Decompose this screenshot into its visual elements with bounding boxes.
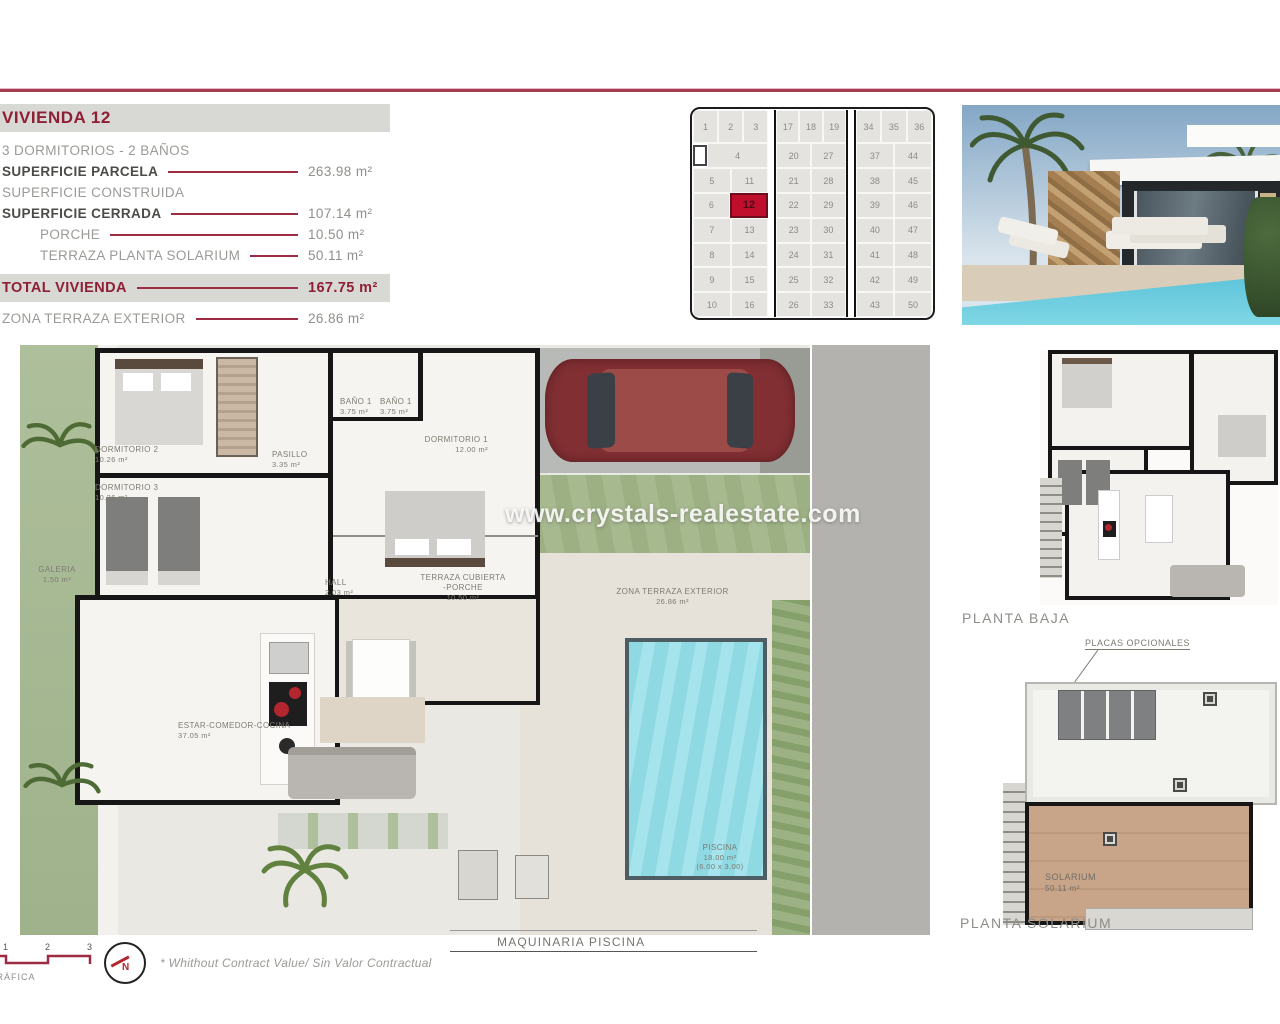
site-cell: 45 — [894, 168, 932, 193]
room-label: DORMITORIO 310.26 m² — [95, 483, 185, 502]
mini-bed — [1062, 358, 1112, 408]
site-cell: 10 — [693, 292, 731, 317]
street-right — [810, 345, 930, 935]
pool-equipment — [458, 850, 498, 900]
site-cell: 1 — [693, 110, 718, 143]
site-cell: 15 — [731, 267, 769, 292]
bed-double — [385, 491, 485, 567]
villa-render-photo — [962, 105, 1280, 325]
room-label: TERRAZA CUBIERTA -PORCHE10.50 m² — [420, 573, 506, 602]
room-label: GALERIA1.50 m² — [34, 565, 80, 584]
mini-table — [1145, 495, 1173, 543]
site-cell: 22 — [776, 193, 811, 218]
roof-band-upper — [1187, 125, 1280, 147]
brochure-page: VIVIENDA 12 3 DORMITORIOS - 2 BAÑOSSUPER… — [0, 0, 1280, 1024]
site-cell: 7 — [693, 218, 731, 243]
planta-baja-label: PLANTA BAJA — [962, 610, 1070, 626]
room-label: ESTAR-COMEDOR-COCINA37.05 m² — [178, 721, 308, 740]
site-cell: 49 — [894, 267, 932, 292]
site-cell: 17 — [776, 110, 799, 143]
mini-bed — [1218, 415, 1266, 457]
site-cell: 35 — [881, 110, 906, 143]
bed-double — [115, 359, 203, 445]
scale-label: ESCALA GRÁFICA — [0, 972, 36, 982]
bed-single — [106, 497, 148, 585]
site-plan-grid: 1234511612713814915101617181920272128222… — [690, 107, 935, 320]
surface-rows: 3 DORMITORIOS - 2 BAÑOSSUPERFICIE PARCEL… — [0, 140, 390, 329]
site-cell: 3 — [743, 110, 768, 143]
svg-text:3: 3 — [87, 942, 92, 952]
mini-stairs — [1040, 478, 1062, 578]
placas-label: PLACAS OPCIONALES — [1085, 638, 1190, 650]
planta-solarium-plan: PLACAS OPCIONALES SOLARIUM 50.11 m² — [1000, 650, 1280, 930]
car-top-view — [545, 359, 795, 462]
site-cell-highlighted: 12 — [730, 193, 769, 218]
palm-tree-icon — [22, 745, 102, 825]
surface-row: PORCHE10.50 m² — [0, 224, 390, 245]
unit-title-bar: VIVIENDA 12 — [0, 104, 390, 132]
palm-tree-icon — [20, 405, 100, 485]
mini-sofa — [1170, 565, 1245, 597]
main-floor-plan: DORMITORIO 210.26 m²DORMITORIO 310.26 m²… — [20, 345, 930, 935]
outdoor-sofa — [1112, 217, 1208, 235]
svg-text:1: 1 — [3, 942, 8, 952]
unit-title: VIVIENDA 12 — [2, 108, 111, 127]
palm-tree-icon — [260, 825, 350, 915]
site-cell — [693, 145, 707, 166]
site-block: 3435363744384539464047414842494350 — [854, 110, 932, 317]
hedge-right — [772, 600, 810, 935]
site-cell: 44 — [894, 143, 932, 168]
site-cell: 27 — [811, 143, 846, 168]
surface-row: 3 DORMITORIOS - 2 BAÑOS — [0, 140, 390, 161]
site-cell: 24 — [776, 243, 811, 268]
surface-row: SUPERFICIE PARCELA263.98 m² — [0, 161, 390, 182]
pool-machinery-label: MAQUINARIA PISCINA — [450, 930, 757, 952]
surface-row: TOTAL VIVIENDA167.75 m² — [0, 274, 390, 302]
site-cell: 39 — [856, 193, 894, 218]
site-block: 12345116127138149151016 — [693, 110, 768, 317]
bed-single — [158, 497, 200, 585]
site-cell: 30 — [811, 218, 846, 243]
surface-row: ZONA TERRAZA EXTERIOR26.86 m² — [0, 308, 390, 329]
pool-equipment — [515, 855, 549, 899]
site-cell: 32 — [811, 267, 846, 292]
site-cell: 23 — [776, 218, 811, 243]
site-cell: 14 — [731, 243, 769, 268]
site-cell: 2 — [718, 110, 743, 143]
svg-text:2: 2 — [45, 942, 50, 952]
site-cell: 47 — [894, 218, 932, 243]
site-cell: 42 — [856, 267, 894, 292]
site-cell: 34 — [856, 110, 881, 143]
wall — [328, 351, 333, 597]
header-rule — [0, 88, 1280, 92]
site-cell: 48 — [894, 243, 932, 268]
room-label: DORMITORIO 112.00 m² — [398, 435, 488, 454]
graphic-scale: 1 2 3 ESCALA GRÁFICA — [0, 938, 100, 984]
room-label: PASILLO3.35 m² — [272, 450, 322, 469]
site-cell: 25 — [776, 267, 811, 292]
site-cell: 21 — [776, 168, 811, 193]
planta-baja-mini-plan — [1040, 350, 1278, 605]
site-cell: 28 — [811, 168, 846, 193]
wardrobe — [216, 357, 258, 457]
site-cell: 19 — [823, 110, 846, 143]
site-cell: 11 — [731, 168, 769, 193]
site-cell: 38 — [856, 168, 894, 193]
wall — [98, 473, 333, 478]
room-label: PISCINA18.00 m²(6.00 x 3.00) — [680, 843, 760, 872]
room-label: BAÑO 13.75 m² — [380, 397, 416, 416]
site-cell: 43 — [856, 292, 894, 317]
roof-hatch — [1103, 832, 1117, 846]
solar-panels — [1058, 690, 1156, 740]
roof-hatch — [1203, 692, 1217, 706]
surface-row: TERRAZA PLANTA SOLARIUM50.11 m² — [0, 245, 390, 266]
room-label: DORMITORIO 210.26 m² — [95, 445, 185, 464]
scale-bar-icon: 1 2 3 — [0, 938, 100, 970]
room-label: HALL2.03 m² — [325, 578, 365, 597]
site-cell: 9 — [693, 267, 731, 292]
surface-row: SUPERFICIE CERRADA107.14 m² — [0, 203, 390, 224]
mini-island — [1098, 490, 1120, 560]
site-cell: 18 — [799, 110, 822, 143]
site-cell: 20 — [776, 143, 811, 168]
solarium-terrace — [1025, 802, 1253, 925]
site-cell: 36 — [907, 110, 932, 143]
wall — [418, 351, 423, 421]
surface-row: SUPERFICIE CONSTRUIDA — [0, 182, 390, 203]
site-cell: 50 — [894, 292, 932, 317]
solarium-room-label: SOLARIUM 50.11 m² — [1045, 872, 1096, 894]
site-cell: 31 — [811, 243, 846, 268]
roof-hatch — [1173, 778, 1187, 792]
site-cell: 37 — [856, 143, 894, 168]
disclaimer-text: * Whithout Contract Value/ Sin Valor Con… — [160, 956, 432, 970]
watermark: www.crystals-realestate.com — [505, 500, 861, 529]
solarium-stairs — [1003, 783, 1025, 925]
room-label: ZONA TERRAZA EXTERIOR26.86 m² — [610, 587, 735, 606]
site-cell: 29 — [811, 193, 846, 218]
site-cell: 5 — [693, 168, 731, 193]
site-cell: 41 — [856, 243, 894, 268]
site-block: 1718192027212822292330243125322633 — [774, 110, 847, 317]
site-cell: 6 — [693, 193, 730, 218]
site-cell: 33 — [811, 292, 846, 317]
site-cell: 4 — [707, 143, 768, 168]
site-cell: 40 — [856, 218, 894, 243]
foliage — [1244, 197, 1280, 317]
sofa — [288, 747, 416, 799]
site-cell: 13 — [731, 218, 769, 243]
site-cell: 16 — [731, 292, 769, 317]
site-cell: 46 — [894, 193, 932, 218]
site-cell: 26 — [776, 292, 811, 317]
wall — [333, 417, 423, 421]
room-label: BAÑO 13.75 m² — [340, 397, 376, 416]
site-cell: 8 — [693, 243, 731, 268]
rug — [320, 697, 425, 743]
planta-solarium-label: PLANTA SOLARIUM — [960, 915, 1112, 931]
unit-info-panel: VIVIENDA 12 3 DORMITORIOS - 2 BAÑOSSUPER… — [0, 104, 390, 329]
north-compass-icon: N — [104, 942, 146, 984]
